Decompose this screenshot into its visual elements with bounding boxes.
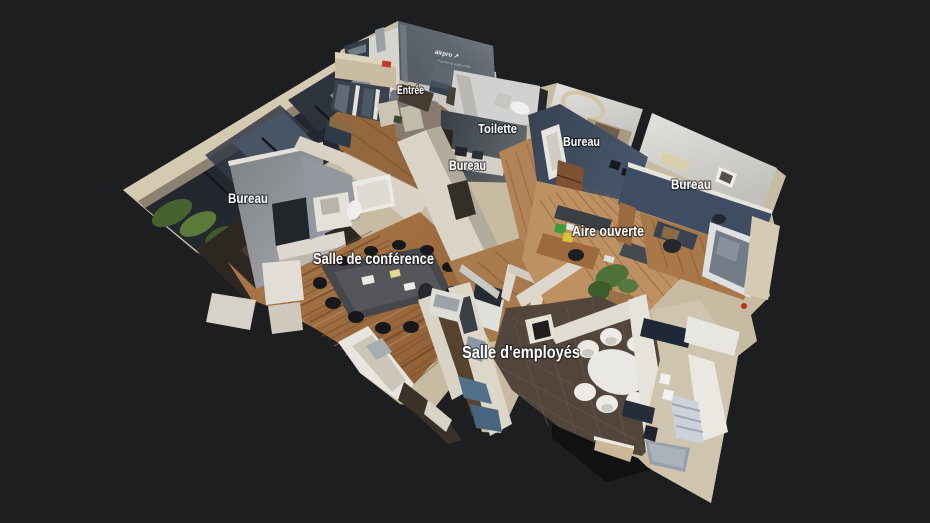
svg-text:Bureau: Bureau: [671, 177, 711, 192]
svg-text:Salle de conférence: Salle de conférence: [313, 251, 434, 268]
svg-text:Bureau: Bureau: [449, 158, 486, 173]
svg-text:Bureau: Bureau: [563, 135, 600, 149]
svg-text:Bureau: Bureau: [228, 191, 268, 206]
svg-text:Toilette: Toilette: [478, 121, 517, 136]
svg-text:Salle d'employés: Salle d'employés: [462, 342, 580, 362]
svg-text:Aire ouverte: Aire ouverte: [572, 224, 644, 240]
svg-text:Entrée: Entrée: [397, 85, 424, 97]
